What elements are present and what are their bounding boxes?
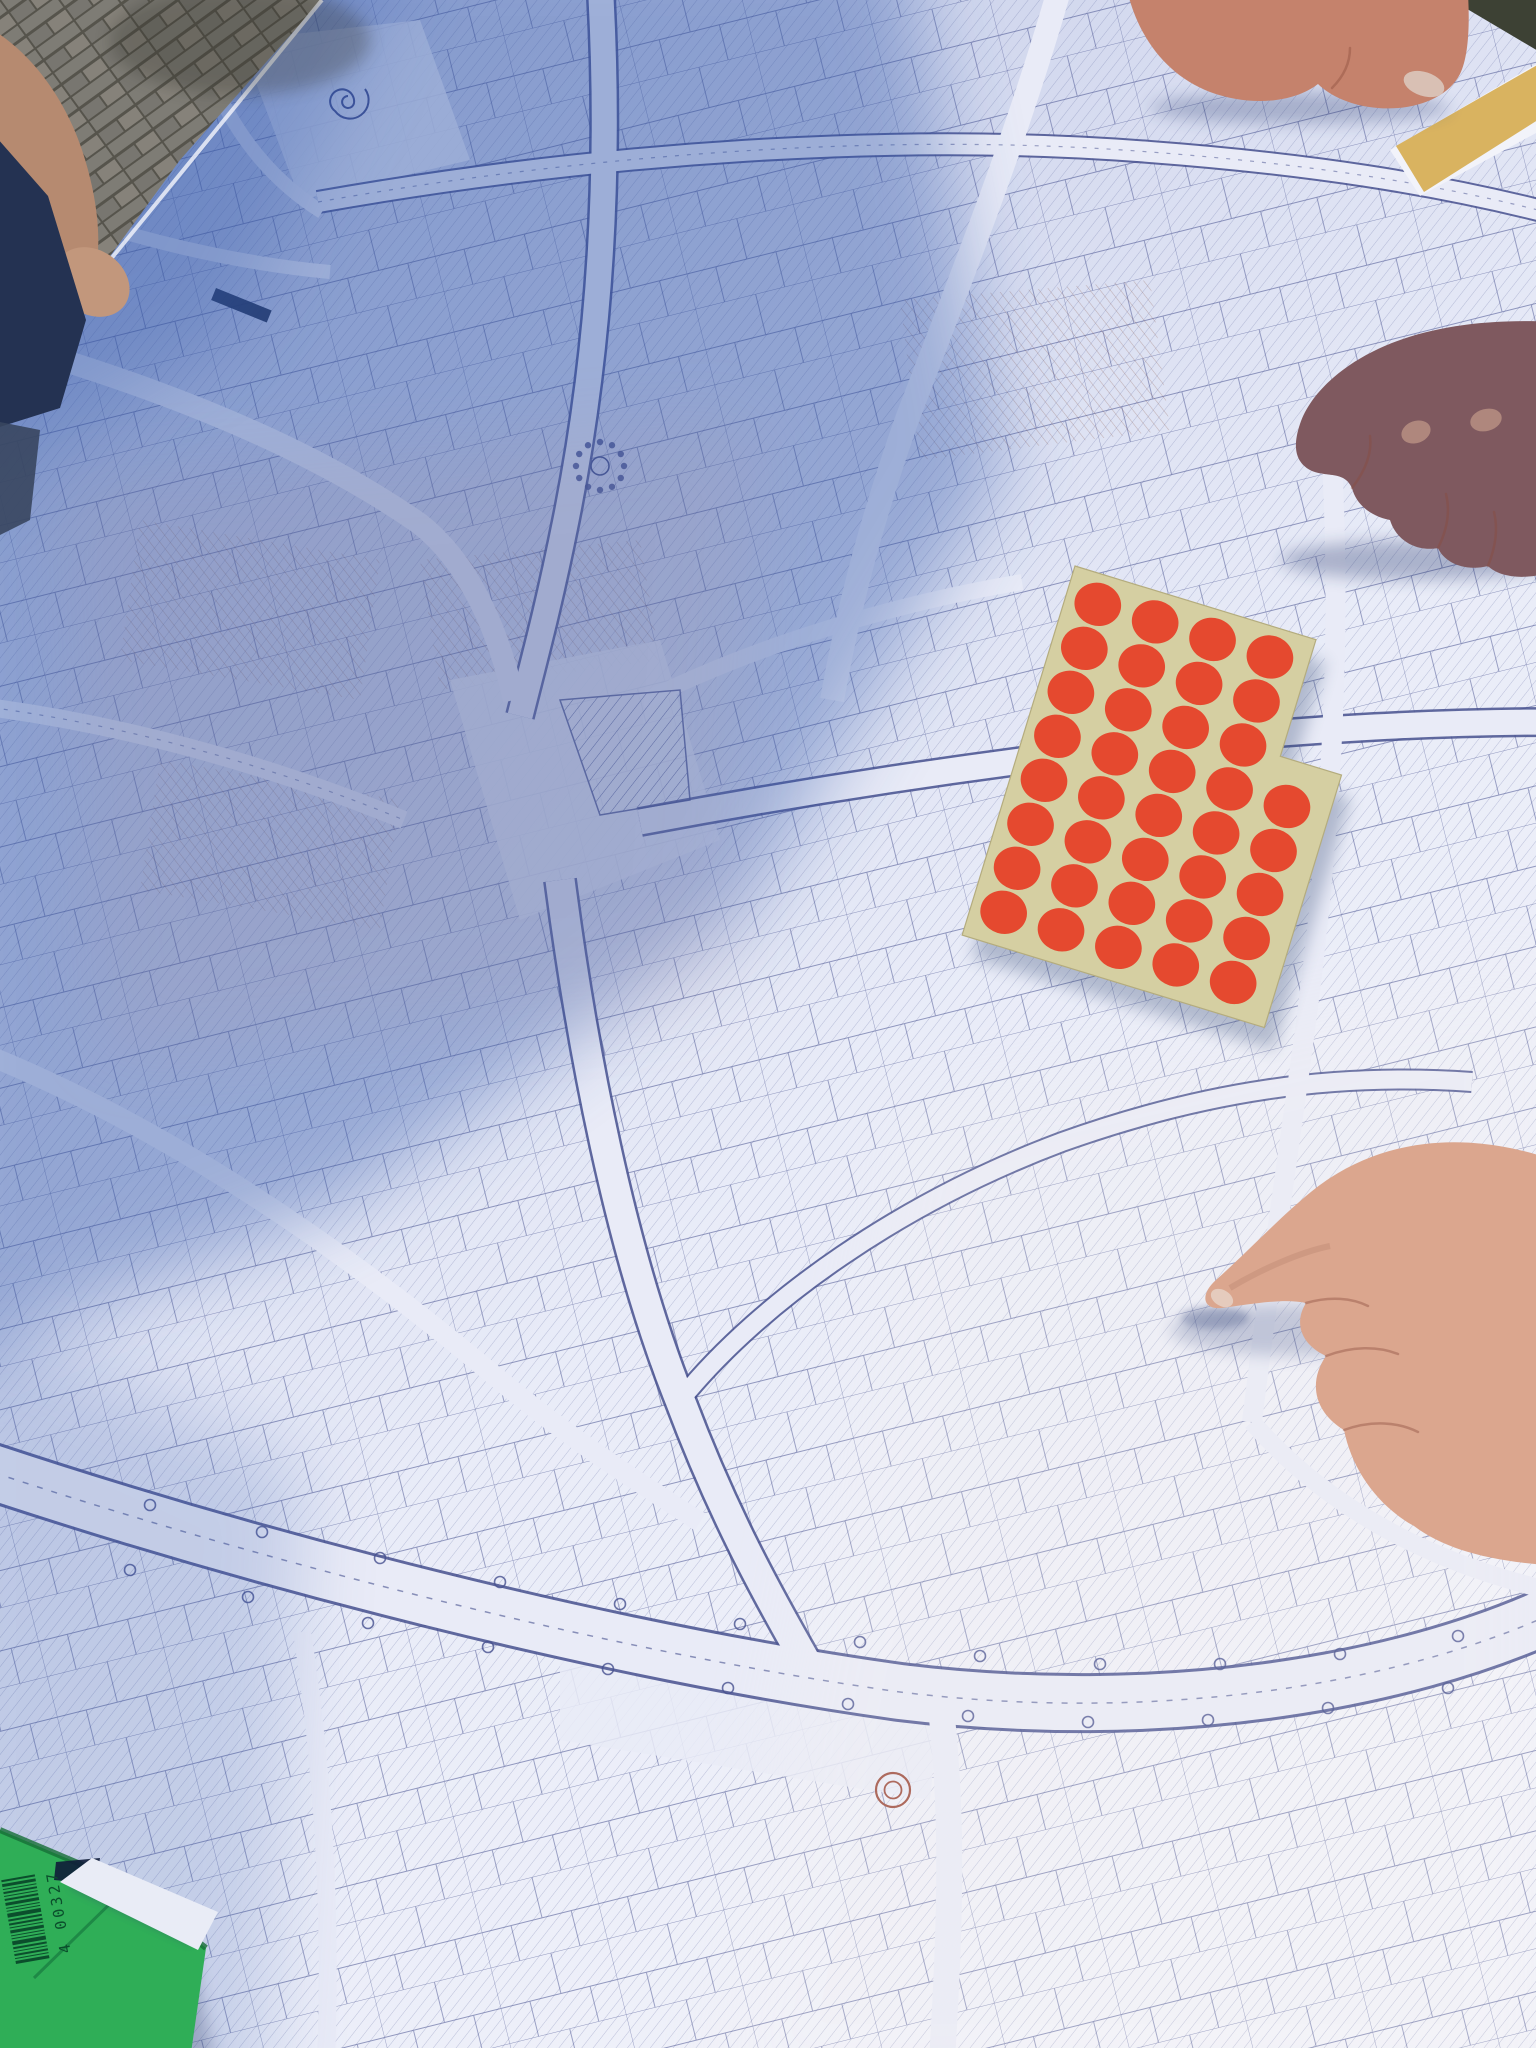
scene: 4 00327	[0, 0, 1536, 2048]
photo-of-city-map-on-table: 4 00327	[0, 0, 1536, 2048]
city-map-sheet	[0, 0, 1536, 2048]
hand-top-right	[1128, 0, 1469, 124]
